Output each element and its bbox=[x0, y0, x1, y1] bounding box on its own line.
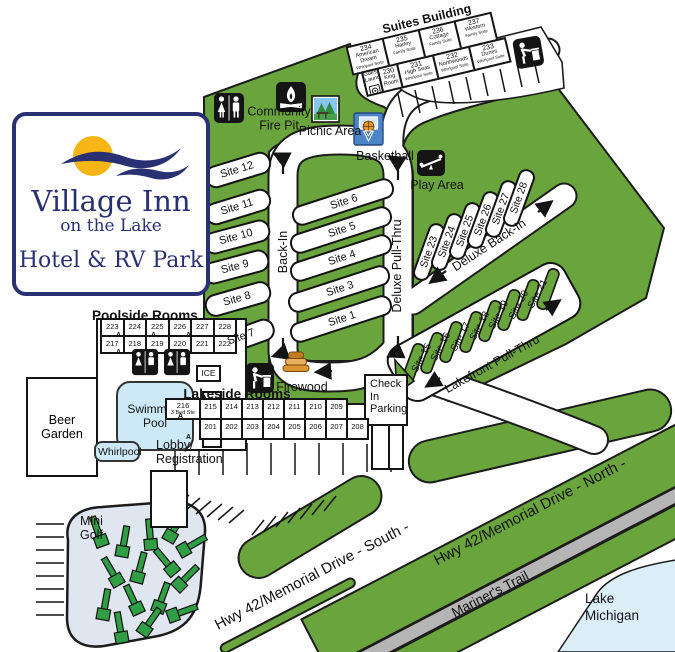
beer-garden: Beer Garden bbox=[26, 377, 98, 477]
resort-logo: Village Inn on the Lake Hotel & RV Park bbox=[12, 112, 210, 296]
stair-marker: A bbox=[186, 434, 191, 441]
room-203: 203 bbox=[241, 418, 264, 440]
ice-machine: ICE bbox=[196, 365, 221, 382]
room-205: 205 bbox=[283, 418, 306, 440]
room-206: 206 bbox=[304, 418, 327, 440]
room-221: 221 bbox=[190, 335, 215, 354]
room-204: 204 bbox=[262, 418, 285, 440]
ice-label: ICE bbox=[201, 368, 215, 378]
stair-marker: A bbox=[151, 332, 156, 339]
firewood-label: Firewood bbox=[276, 380, 327, 394]
room-202: 202 bbox=[220, 418, 243, 440]
room-210: 210 bbox=[304, 398, 327, 420]
stair-marker: A bbox=[116, 349, 121, 356]
basketball-label: Basketball bbox=[356, 149, 414, 163]
lake-michigan-label: LakeMichigan bbox=[585, 590, 639, 624]
lakeside-rooms-bottom-row: 201 202 203 204 205 206 207 208 bbox=[199, 418, 369, 440]
logo-tagline: on the Lake bbox=[16, 216, 206, 236]
resort-map: Village Inn on the Lake Hotel & RV Park … bbox=[0, 0, 675, 652]
room-219: 219 bbox=[145, 335, 170, 354]
sun-waves-icon bbox=[31, 124, 191, 182]
stair-marker: A bbox=[116, 332, 121, 339]
poolside-rooms-title: Poolside Rooms bbox=[92, 308, 198, 323]
room-201: 201 bbox=[199, 418, 222, 440]
room-209: 209 bbox=[325, 398, 348, 420]
room-208: 208 bbox=[346, 418, 369, 440]
beer-garden-label: Beer Garden bbox=[36, 413, 88, 441]
lobby-building bbox=[150, 470, 188, 528]
play-area-label: Play Area bbox=[410, 178, 464, 192]
check-in-parking-stalls bbox=[371, 424, 404, 470]
lobby-label: Lobby/Registration bbox=[156, 438, 223, 466]
stair-marker: A bbox=[178, 413, 183, 420]
mini-golf-label: Mini Golf bbox=[80, 514, 116, 542]
stair-marker: A bbox=[186, 332, 191, 339]
lakeside-rooms-title: Lakeside Rooms bbox=[183, 387, 290, 402]
deluxe-pull-thru-lane-label: Deluxe Pull-Thru bbox=[390, 219, 404, 312]
whirlpool: Whirlpool bbox=[94, 441, 140, 462]
logo-name: Village Inn bbox=[16, 186, 206, 216]
back-in-lane-label: Back-In bbox=[276, 231, 290, 273]
room-218: 218 bbox=[123, 335, 148, 354]
picnic-area-label: Picnic Area bbox=[299, 124, 362, 138]
check-in-parking: CheckInParking bbox=[364, 374, 408, 426]
room-207: 207 bbox=[325, 418, 348, 440]
logo-subtitle: Hotel & RV Park bbox=[16, 248, 206, 274]
whirlpool-label: Whirlpool bbox=[96, 446, 142, 458]
